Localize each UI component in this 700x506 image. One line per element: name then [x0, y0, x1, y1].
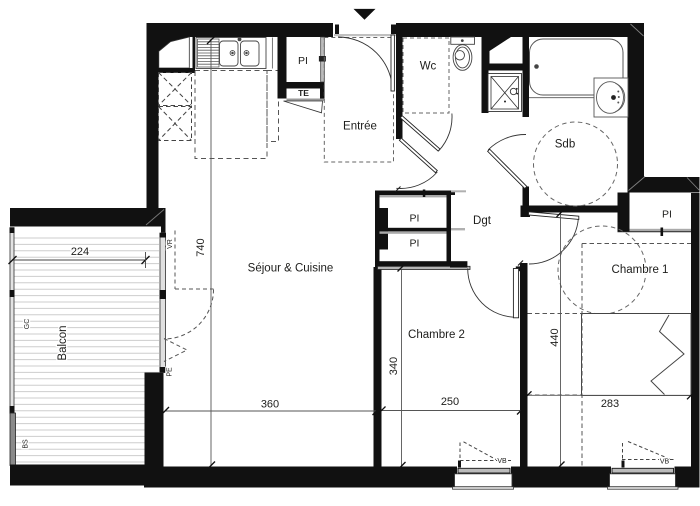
svg-text:VB: VB	[497, 458, 507, 465]
svg-text:BS: BS	[23, 439, 30, 449]
svg-text:360: 360	[261, 399, 279, 411]
svg-text:440: 440	[549, 328, 561, 346]
svg-text:VB: VB	[660, 459, 670, 466]
svg-text:Chambre 1: Chambre 1	[612, 264, 669, 276]
svg-text:PI: PI	[662, 209, 672, 221]
svg-text:Chambre 2: Chambre 2	[408, 329, 465, 341]
svg-text:Wc: Wc	[420, 61, 437, 73]
svg-text:Dgt: Dgt	[473, 215, 492, 227]
svg-text:PI: PI	[298, 55, 308, 67]
svg-text:Balcon: Balcon	[57, 325, 69, 360]
svg-text:PI: PI	[410, 213, 420, 225]
svg-text:740: 740	[195, 238, 207, 256]
svg-text:224: 224	[71, 246, 89, 258]
svg-text:GC: GC	[24, 319, 31, 330]
svg-text:PI: PI	[410, 238, 420, 250]
svg-text:283: 283	[601, 398, 619, 410]
svg-text:TE: TE	[298, 88, 309, 98]
svg-text:340: 340	[388, 357, 400, 375]
svg-text:Séjour & Cuisine: Séjour & Cuisine	[248, 263, 334, 275]
svg-text:PE: PE	[167, 367, 174, 377]
svg-text:Entrée: Entrée	[343, 121, 377, 133]
svg-text:250: 250	[441, 396, 459, 408]
svg-text:VR: VR	[167, 239, 174, 249]
svg-text:Sdb: Sdb	[555, 139, 575, 151]
